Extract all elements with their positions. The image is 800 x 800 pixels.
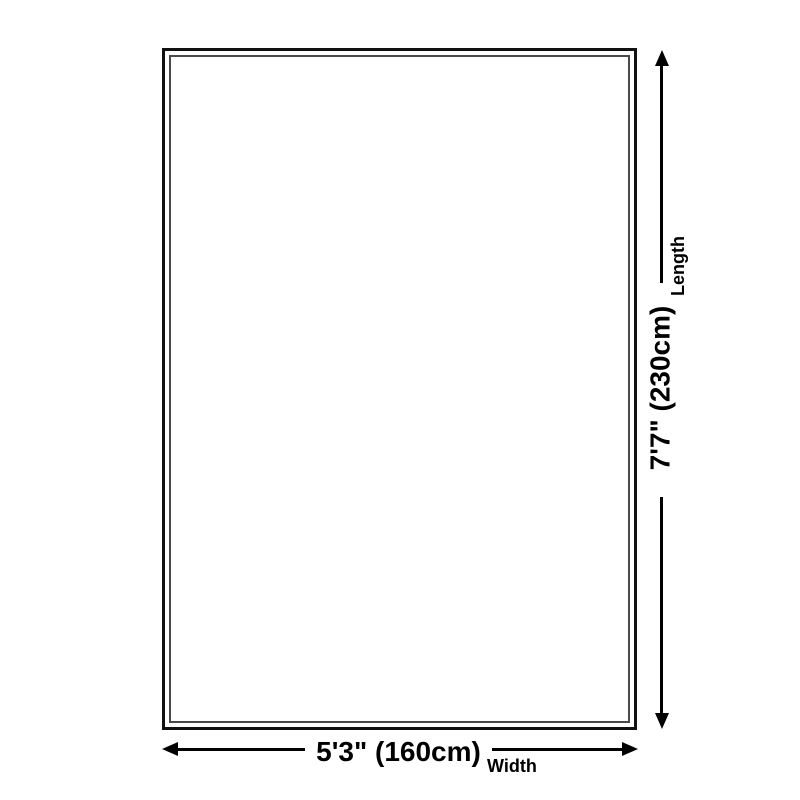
width-caption-label: Width [487,757,537,777]
rug-outline [162,48,637,730]
length-line-top-segment [660,63,663,283]
rug-dimension-diagram: 5'3" (160cm) Width Length 7'7" (230cm) [0,0,800,800]
width-line-left-segment [175,748,305,751]
arrow-right-icon [622,742,638,756]
width-value-label: 5'3" (160cm) [305,737,492,768]
rug-inner-outline [169,55,630,723]
length-line-bottom-segment [660,497,663,714]
width-line-right-segment [492,748,623,751]
length-caption-label: Length [669,236,689,296]
arrow-down-icon [655,713,669,729]
length-value-label: 7'7" (230cm) [646,306,677,471]
